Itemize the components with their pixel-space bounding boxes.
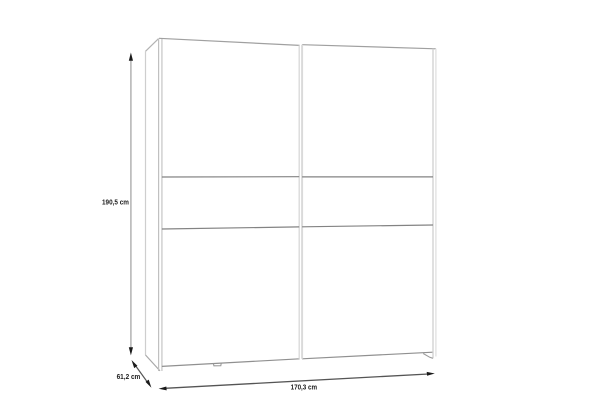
svg-text:61,2 cm: 61,2 cm [117,374,141,381]
svg-text:170,3 cm: 170,3 cm [291,385,318,392]
svg-text:190,5 cm: 190,5 cm [102,200,129,207]
